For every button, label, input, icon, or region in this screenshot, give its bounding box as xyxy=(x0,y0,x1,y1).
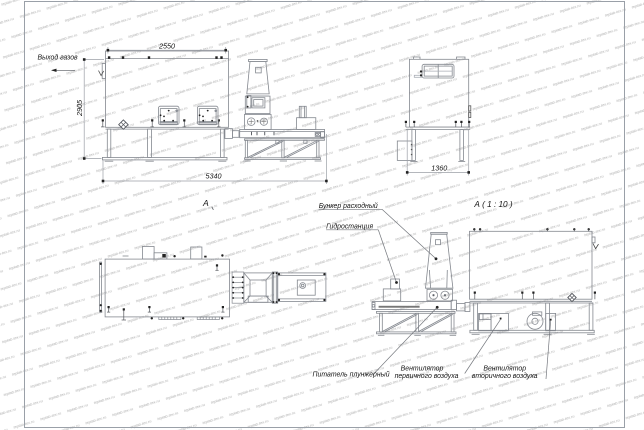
svg-text:Питатель плунжерный: Питатель плунжерный xyxy=(313,370,390,378)
svg-text:А ( 1 : 10 ): А ( 1 : 10 ) xyxy=(473,200,512,209)
svg-text:Бункер расходный: Бункер расходный xyxy=(319,202,378,210)
svg-text:вторичного воздуха: вторичного воздуха xyxy=(472,372,538,380)
svg-text:Вентилятор: Вентилятор xyxy=(483,365,526,372)
svg-text:2550: 2550 xyxy=(158,41,175,50)
svg-text:первичного воздуха: первичного воздуха xyxy=(395,372,459,380)
svg-text:5340: 5340 xyxy=(206,172,222,181)
svg-text:Вентилятор: Вентилятор xyxy=(401,365,444,372)
svg-text:Выход газов: Выход газов xyxy=(38,54,79,62)
svg-text:2905: 2905 xyxy=(75,99,84,117)
svg-text:A: A xyxy=(202,198,209,208)
svg-text:1360: 1360 xyxy=(431,164,447,173)
svg-text:Гидростанция: Гидростанция xyxy=(326,222,373,230)
